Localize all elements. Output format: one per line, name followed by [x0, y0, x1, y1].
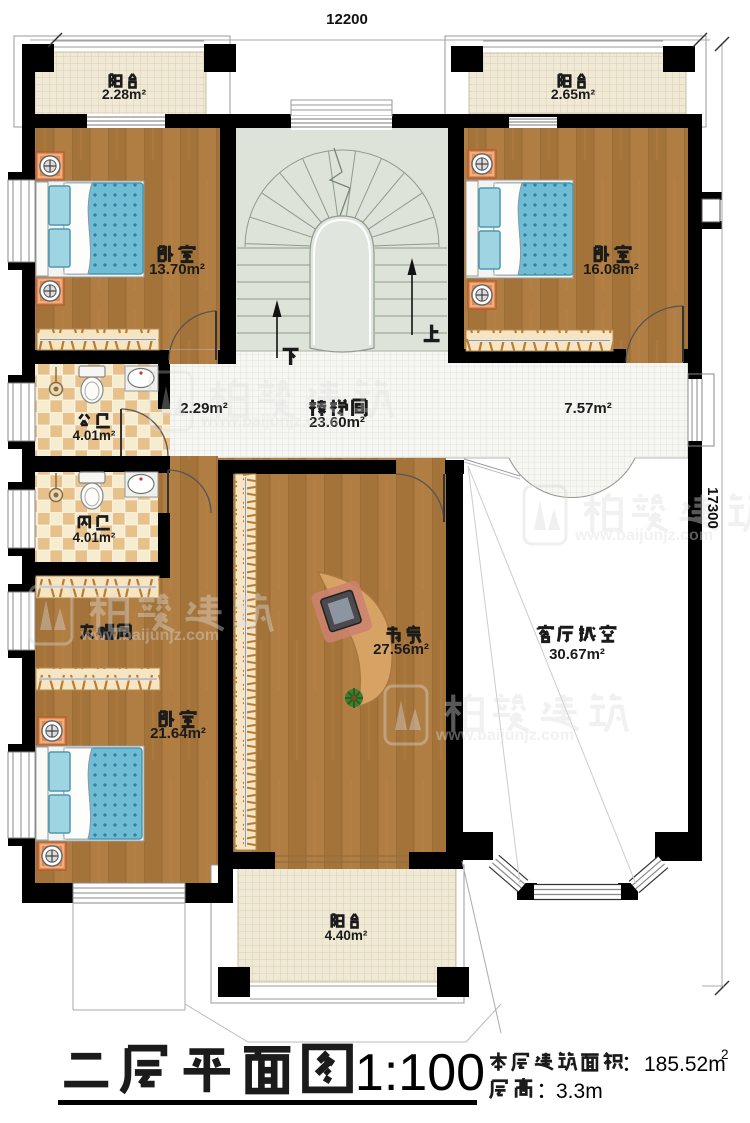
svg-text:www.baijunjz.com: www.baijunjz.com [200, 413, 339, 430]
svg-text:：: ： [621, 1051, 643, 1076]
svg-text:13.70m²: 13.70m² [149, 261, 205, 278]
svg-text:30.67m²: 30.67m² [549, 646, 605, 663]
svg-text:7.57m²: 7.57m² [564, 400, 612, 417]
svg-text:2.28m²: 2.28m² [102, 86, 147, 102]
svg-text:3.3m: 3.3m [556, 1080, 603, 1103]
svg-text:27.56m²: 27.56m² [373, 641, 429, 658]
svg-text:12200: 12200 [326, 11, 368, 28]
svg-text:4.01m²: 4.01m² [73, 428, 116, 443]
svg-text:185.52m: 185.52m [644, 1053, 726, 1076]
svg-text:16.08m²: 16.08m² [583, 261, 639, 278]
svg-text:4.40m²: 4.40m² [325, 928, 368, 943]
svg-text:www.baijunjz.com: www.baijunjz.com [435, 727, 574, 744]
svg-text:17300: 17300 [704, 487, 721, 529]
svg-text:www.baijunjz.com: www.baijunjz.com [80, 627, 219, 644]
svg-text:21.64m²: 21.64m² [150, 725, 206, 742]
svg-text:1:100: 1:100 [355, 1044, 485, 1102]
svg-text:www.baijunjz.com: www.baijunjz.com [574, 527, 713, 544]
svg-text:：: ： [536, 1078, 558, 1103]
svg-text:4.01m²: 4.01m² [73, 530, 116, 545]
svg-text:2: 2 [721, 1047, 729, 1062]
svg-text:2.65m²: 2.65m² [551, 86, 596, 102]
